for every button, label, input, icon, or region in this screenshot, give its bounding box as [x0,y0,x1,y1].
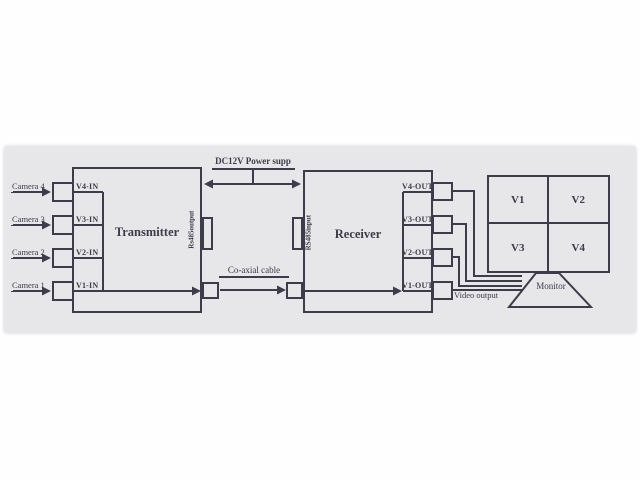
camera-label-3-text: Camera 3 [11,214,46,226]
camera-label-4: Camera 4 [11,177,46,194]
coax-arrowhead-icon [277,286,286,295]
port-label-v1-out: V1-OUT [402,282,433,290]
connector-coax-rx [286,282,303,299]
connector-v3-out [432,215,453,234]
coax-link-label: Co-axial cable [204,266,304,275]
receiver-arrowhead-icon [393,287,402,296]
camera-label-1: Camera 1 [11,276,46,293]
monitor-quadrant-v3: V3 [489,224,549,271]
port-label-v3-out: V3-OUT [402,216,433,224]
connector-v1-in [52,281,74,301]
power-label-pointer [212,169,295,183]
transmitter-arrowhead-icon [192,287,201,296]
port-label-v4-in: V4-IN [76,183,98,191]
connector-v3-in [52,215,74,235]
monitor-quadrant-v4: V4 [549,224,609,271]
power-link-label: DC12V Power supp [203,157,303,166]
connector-v2-in [52,248,74,268]
connector-v2-out [432,248,453,267]
connector-rs485-out [202,217,213,250]
camera-label-2: Camera 2 [11,243,46,260]
port-label-v2-out: V2-OUT [402,249,433,257]
port-label-v3-in: V3-IN [76,216,98,224]
power-left-arrowhead-icon [204,180,213,189]
receiver-port-stubs [403,192,432,291]
camera-label-2-text: Camera 2 [11,247,46,259]
port-label-v1-in: V1-IN [76,282,98,290]
connector-v4-out [432,182,453,201]
port-label-v2-in: V2-IN [76,249,98,257]
monitor-quadrant-v2: V2 [549,177,609,224]
receiver-title: Receiver [313,228,403,241]
connector-coax-tx [202,282,219,299]
camera-label-1-text: Camera 1 [11,280,46,292]
transmitter-rs485-label: Rs485output [188,198,195,262]
video-output-label: Video output [454,291,498,300]
camera-label-3: Camera 3 [11,210,46,227]
receiver-rs485-label: RS485input [305,201,312,265]
port-label-v4-out: V4-OUT [402,183,433,191]
camera-label-4-text: Camera 4 [11,181,46,193]
connector-v4-in [52,182,74,202]
product-photo-diagram: Transmitter Rs485output Receiver RS485in… [0,0,640,480]
connector-rs485-in [292,217,303,250]
connector-v1-out [432,281,453,300]
transmitter-title: Transmitter [92,226,202,239]
monitor-quadrant-v1: V1 [489,177,549,224]
monitor-label: Monitor [516,282,586,291]
monitor-screen: V1 V2 V3 V4 [487,175,610,273]
power-right-arrowhead-icon [292,180,301,189]
